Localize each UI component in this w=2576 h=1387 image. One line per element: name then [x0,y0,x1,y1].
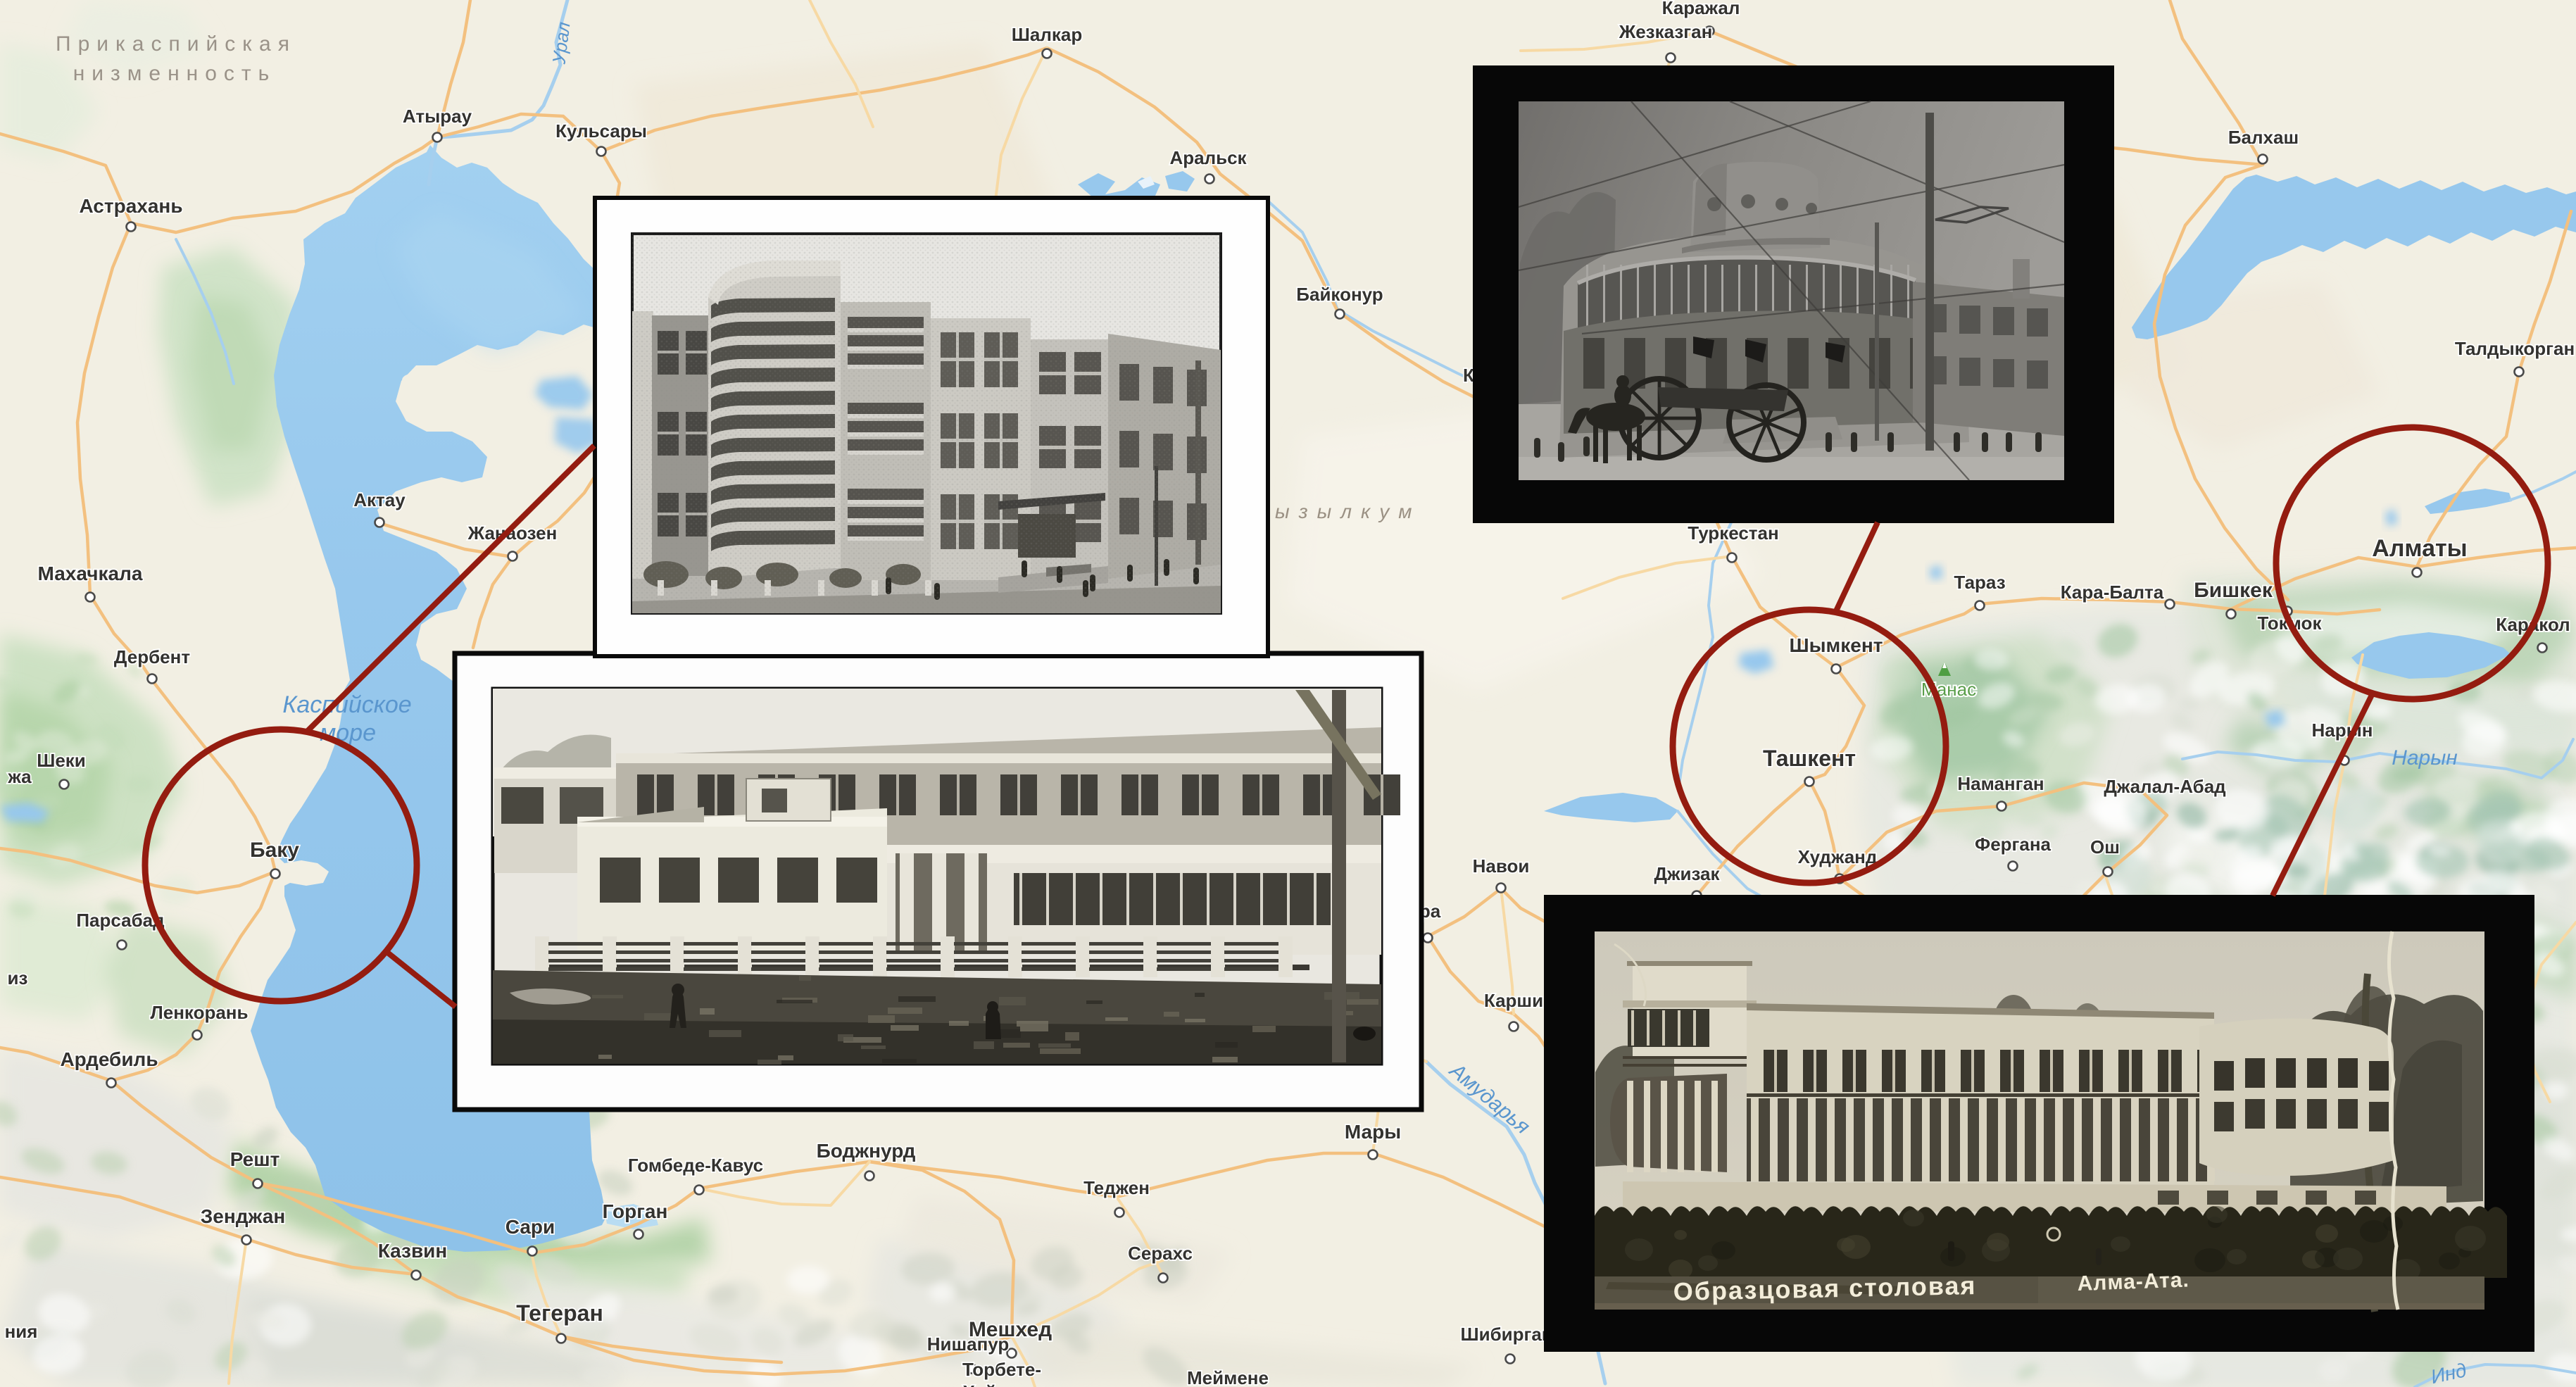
svg-text:Карши: Карши [1484,990,1543,1011]
svg-text:Кульсары: Кульсары [555,120,647,142]
svg-text:Баку: Баку [250,839,299,862]
svg-text:Тараз: Тараз [1954,572,2005,593]
svg-text:Нарын: Нарын [2392,746,2458,770]
svg-text:Джизак: Джизак [1654,863,1721,884]
svg-text:Зенджан: Зенджан [201,1205,285,1227]
svg-text:Жезказган: Жезказган [1619,21,1713,42]
svg-text:ния: ния [5,1321,38,1342]
svg-text:Меймене: Меймене [1187,1367,1269,1387]
svg-text:Решт: Решт [230,1148,280,1170]
svg-text:Мары: Мары [1345,1121,1401,1143]
svg-text:Нарын: Нарын [2311,720,2373,741]
svg-text:Шеки: Шеки [37,750,86,771]
svg-text:Махачкала: Махачкала [38,563,143,584]
svg-text:Ош: Ош [2090,836,2120,858]
svg-text:Актау: Актау [353,489,406,510]
svg-text:Шибирган: Шибирган [1460,1324,1552,1345]
svg-text:Гомбеде-Кавус: Гомбеде-Кавус [628,1155,763,1176]
svg-text:Астрахань: Астрахань [79,195,182,217]
svg-text:Худжанд: Худжанд [1798,846,1878,867]
svg-text:Ленкорань: Ленкорань [151,1002,249,1023]
svg-text:Кара-Балта: Кара-Балта [2061,582,2164,603]
svg-text:Бишкек: Бишкек [2194,579,2273,602]
svg-text:Теджен: Теджен [1083,1177,1150,1198]
svg-text:Сари: Сари [505,1216,555,1238]
svg-text:Дербент: Дербент [114,646,190,667]
svg-text:Нишапур: Нишапур [927,1333,1010,1355]
svg-text:Казвин: Казвин [378,1240,448,1262]
svg-text:Наманган: Наманган [1957,773,2044,794]
svg-text:Шалкар: Шалкар [1012,24,1082,45]
svg-text:жа: жа [7,766,32,787]
svg-text:из: из [8,967,28,989]
svg-text:Балхаш: Балхаш [2228,127,2299,148]
svg-text:Каражал: Каражал [1662,0,1740,18]
svg-text:Алма-Ата.: Алма-Ата. [2077,1268,2189,1295]
svg-text:Прикаспийская: Прикаспийская [56,32,296,56]
svg-text:Ташкент: Ташкент [1763,746,1856,771]
svg-text:Навои: Навои [1473,855,1530,877]
svg-text:Ардебиль: Ардебиль [60,1048,158,1070]
svg-text:Алматы: Алматы [2372,535,2467,562]
svg-text:Серахс: Серахс [1128,1243,1193,1264]
svg-text:низменность: низменность [73,62,277,85]
svg-text:Хейдерие: Хейдерие [962,1381,1050,1387]
svg-text:Джалал-Абад: Джалал-Абад [2104,776,2226,797]
svg-text:Кызылкум: Кызылкум [1255,501,1421,522]
svg-text:Атырау: Атырау [403,106,472,127]
svg-text:Фергана: Фергана [1975,834,2052,855]
svg-text:Байконур: Байконур [1296,284,1383,305]
svg-text:Тегеран: Тегеран [516,1300,603,1326]
svg-text:Шымкент: Шымкент [1790,634,1883,656]
svg-text:Горган: Горган [603,1200,668,1222]
svg-text:Аральск: Аральск [1169,147,1247,168]
svg-text:Туркестан: Туркестан [1688,522,1778,544]
svg-text:Торбете-: Торбете- [962,1359,1041,1380]
svg-text:Талдыкорган: Талдыкорган [2455,338,2575,359]
svg-text:море: море [320,720,376,746]
svg-text:Боджнурд: Боджнурд [817,1140,916,1162]
